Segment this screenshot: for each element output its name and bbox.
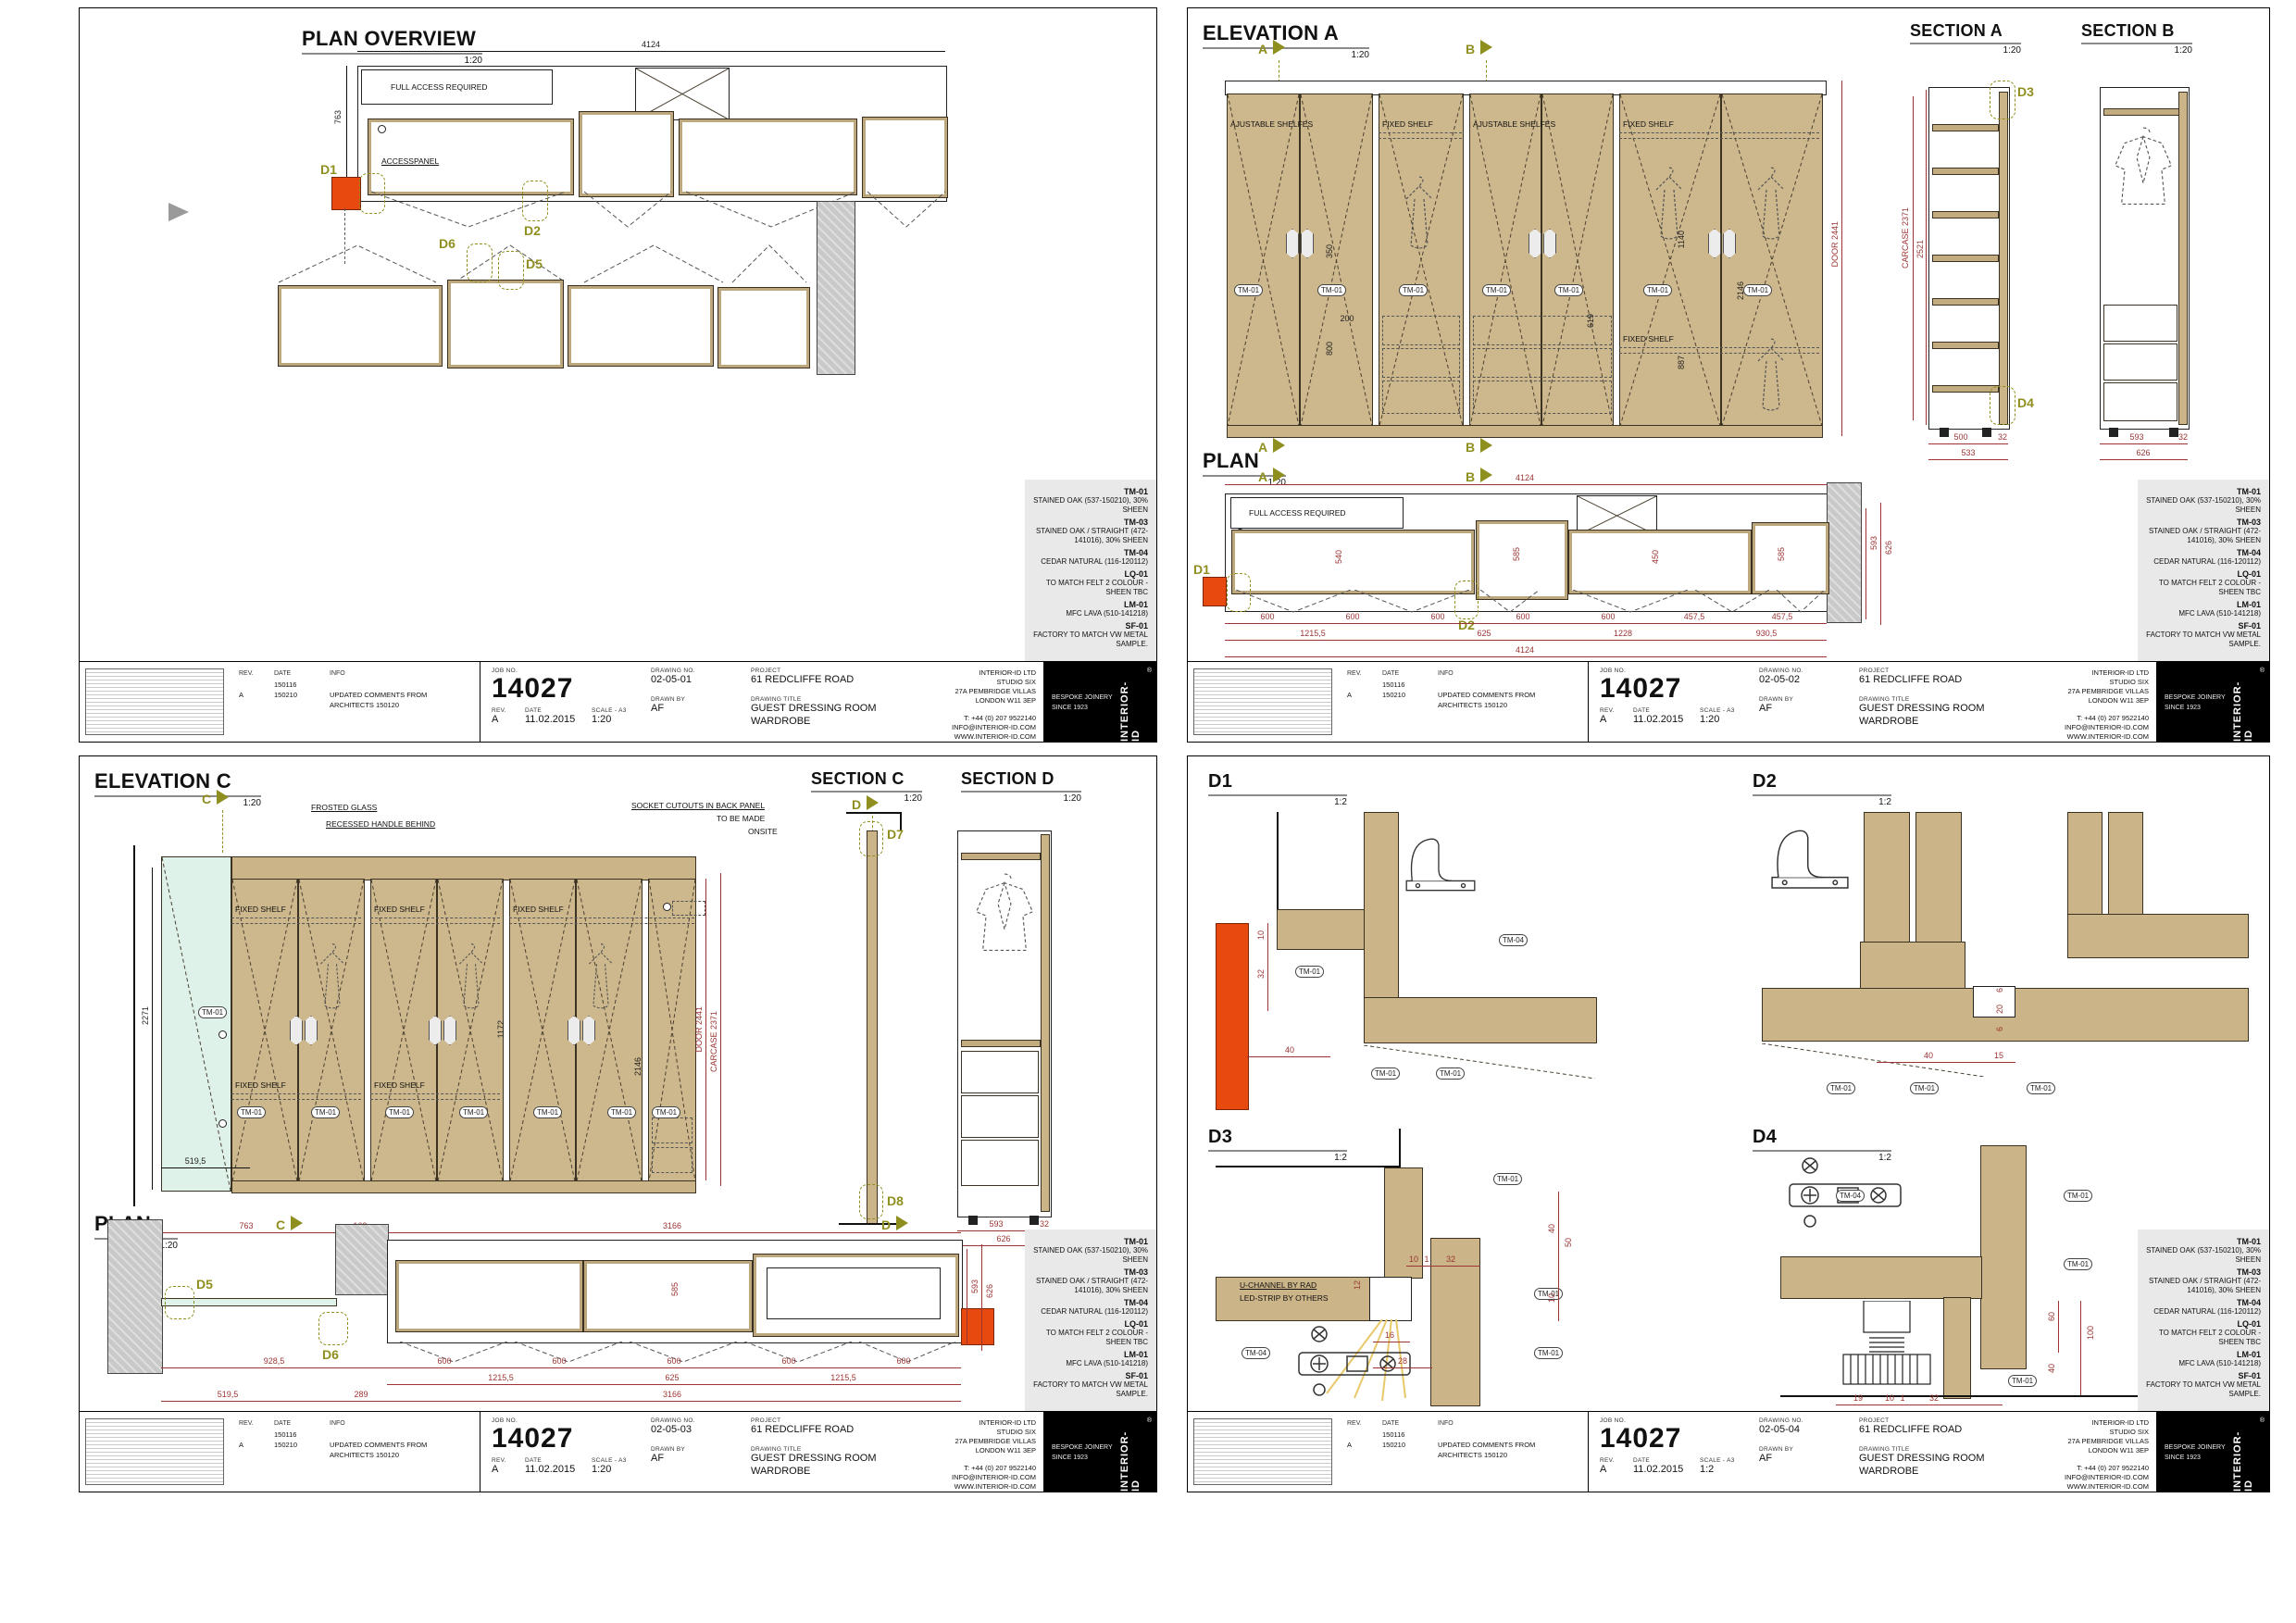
company-line: LONDON W11 3EP [895,696,1036,705]
detail-bubble-d5 [498,251,524,290]
label: REV. [492,1457,518,1464]
dim: 585 [1512,547,1521,561]
project-name: 61 REDCLIFFE ROAD [751,1424,877,1437]
phone: T: +44 (0) 207 9522140 [895,714,1036,723]
dim-line [387,1384,961,1385]
label: SCALE - A3 [592,707,640,714]
label-adjustable-shelves: AJUSTABLE SHELFES [1473,119,1555,129]
dim: 4124 [1516,645,1534,655]
material-tag: TM-01 [385,1106,414,1118]
dim-line [1225,656,1827,657]
drawing-scale: 1:2 [1208,797,1347,807]
scale-value: 1:20 [592,1464,640,1477]
sheet-elevation-a: ELEVATION A1:20 A B AJUSTABLE SHELFES FI… [1187,7,2270,743]
dim: 619 [1586,314,1595,328]
dim: 1228 [1614,629,1632,638]
wall-line [133,845,135,1206]
logo-wordmark: INTERIOR-ID [2232,669,2254,742]
panel-section [2067,914,2249,958]
dim-line [357,51,945,52]
rev [1347,680,1379,690]
break-arrow [168,203,189,221]
material-tag: TM-01 [1482,284,1511,296]
dim-line [981,1244,982,1351]
label: DATE [1633,707,1692,714]
dim-line [387,1401,961,1402]
label: DRAWING TITLE [751,1446,877,1453]
drawing-number: 02-05-04 [1759,1424,1839,1437]
frosted-glass-door [161,856,231,1192]
dim-carcase: CARCASE 2371 [1901,207,1910,268]
shelf-dashed [509,918,694,924]
shelf [1932,211,1999,218]
rev-date: 150116 [1382,1429,1434,1440]
company-block: INTERIOR-ID LTDSTUDIO SIX27A PEMBRIDGE V… [888,662,1043,742]
note-recessed-handle: RECESSED HANDLE BEHIND [326,819,435,829]
drawer [2103,382,2177,421]
label: DRAWN BY [651,1446,730,1453]
material-desc: CEDAR NATURAL (116-120112) [2146,557,2261,567]
date-value: 11.02.2015 [1633,714,1692,727]
dim-door-height: DOOR 2441 [1830,221,1840,268]
disclaimer-text [1193,668,1332,735]
dim-carcase: CARCASE 2371 [709,1011,718,1072]
detail-marker-d1: D1 [320,162,337,177]
wall-section [335,1224,389,1295]
dim: 40 [2047,1364,2056,1373]
dim-line [1558,1192,1559,1321]
rev-info: UPDATED COMMENTS FROM ARCHITECTS 150120 [330,1440,470,1461]
hanger-sketch [1401,175,1438,254]
dim: 40 [1285,1045,1294,1055]
wall-line [1277,812,1279,914]
dim: 600 [552,1356,566,1366]
materials-legend: TM-01STAINED OAK (537-150210), 30% SHEEN… [1025,1230,1156,1411]
registered-icon: ® [2260,668,2265,674]
detail-bubble-d4 [1990,386,2015,425]
registered-icon: ® [1147,1417,1152,1424]
drawing-header: PLAN OVERVIEW 1:20 [302,27,482,66]
email: INFO@INTERIOR-ID.COM [895,723,1036,732]
dim-line [2174,443,2188,444]
material-desc: FACTORY TO MATCH VW METAL SAMPLE. [2146,1380,2261,1399]
cabinet-plan [680,119,856,194]
materials-legend: TM-01STAINED OAK (537-150210), 30% SHEEN… [1025,480,1156,661]
label-fixed-shelf: FIXED SHELF [374,1080,425,1090]
material-code: TM-03 [2146,1267,2261,1277]
company-line: 27A PEMBRIDGE VILLAS [895,1437,1036,1446]
drawer [2103,343,2177,381]
dim: 2146 [633,1057,643,1076]
drawing-header: SECTION D1:20 [961,769,1081,804]
dim-line [1836,1405,2003,1405]
material-desc: MFC LAVA (510-141218) [2146,609,2261,618]
dim-line [161,1401,387,1402]
drawing-title: D2 [1753,771,1891,793]
dim: 763 [333,110,343,124]
material-code: TM-04 [2146,548,2261,557]
handle-dot [218,1119,227,1128]
section-door-edge [1041,834,1050,1212]
dim: 1215,5 [1300,629,1326,638]
panel-section [1364,997,1597,1043]
material-code: TM-01 [2146,1237,2261,1246]
section-flag-b: B [1466,42,1475,56]
dim: 930,5 [1756,629,1778,638]
shelf-dashed [370,918,500,924]
detail-marker-d7: D7 [887,827,904,842]
rev [239,1429,270,1440]
section-door-edge [1999,92,2008,425]
label: DRAWN BY [651,696,730,703]
title-block: REV.DATEINFO 150116 A150210UPDATED COMME… [80,1411,1156,1492]
material-tag: TM-01 [607,1106,636,1118]
drawing-title-2: WARDROBE [751,716,877,729]
material-tag: TM-01 [1554,284,1583,296]
dim: 533 [1961,448,1975,457]
drawn-by: AF [651,1453,730,1466]
website: WWW.INTERIOR-ID.COM [895,732,1036,742]
wardrobe-door [1227,94,1300,427]
phone: T: +44 (0) 207 9522140 [2008,714,2149,723]
dim-line [1978,1062,2015,1063]
material-tag: TM-01 [2027,1082,2055,1094]
panel-section [1915,812,1962,943]
detail-marker-d4: D4 [2017,395,2034,410]
material-desc: TO MATCH FELT 2 COLOUR - SHEEN TBC [2146,579,2261,597]
project-name: 61 REDCLIFFE ROAD [1859,1424,1990,1437]
dim: 32 [1040,1219,1049,1229]
logo-tagline-2: SINCE 1923 [2165,705,2201,711]
section-flag-b: B [1466,469,1475,484]
hinge-section [1764,821,1856,893]
material-desc: STAINED OAK / STRAIGHT (472-141016), 30%… [1033,527,1148,545]
info-col: INFO [1438,1419,1578,1429]
dim: 15 [1994,1051,2003,1060]
wall-line [1399,1129,1401,1166]
revision-table: REV.DATEINFO 150116 A150210UPDATED COMME… [230,1412,480,1492]
adjustable-foot [2169,428,2178,437]
disclaimer-text [85,1418,224,1485]
shelf-dashed [1379,132,1462,139]
dim: 40 [1547,1224,1556,1233]
dim: 350 [1325,244,1334,258]
material-tag: TM-01 [1371,1067,1400,1080]
drawing-header: D31:2 [1208,1127,1347,1163]
disclaimer-text [1193,1418,1332,1485]
detail-marker-d6: D6 [322,1347,339,1362]
dim: 600 [1601,612,1615,621]
material-desc: STAINED OAK / STRAIGHT (472-141016), 30%… [2146,1277,2261,1295]
title-fields: JOB NO.14027 REV.DATESCALE - A3 A11.02.2… [1589,662,2001,742]
drawing-title: SECTION B [2081,21,2192,41]
material-code: TM-01 [1033,1237,1148,1246]
dim: 200 [1340,314,1354,323]
material-desc: CEDAR NATURAL (116-120112) [2146,1307,2261,1317]
title-fields: JOB NO.14027 REV.DATESCALE - A3 A11.02.2… [480,1412,888,1492]
dim: 593 [2129,432,2143,442]
dim: 600 [896,1356,910,1366]
material-desc: STAINED OAK (537-150210), 30% SHEEN [2146,496,2261,515]
dim: 10 [1256,930,1266,940]
wall-finish-orange [1203,577,1227,606]
label: DRAWING NO. [1759,1417,1839,1424]
plinth-section [1943,1297,1971,1399]
material-tag: TM-01 [1910,1082,1939,1094]
dim: 626 [985,1284,994,1298]
dim-line [161,1232,335,1233]
label: REV. [492,707,518,714]
website: WWW.INTERIOR-ID.COM [2008,1482,2149,1492]
phone: T: +44 (0) 207 9522140 [895,1464,1036,1473]
material-code: TM-03 [2146,518,2261,527]
drawing-title: SECTION A [1910,21,2021,41]
drawing-header: SECTION A1:20 [1910,21,2021,56]
company-logo: BESPOKE JOINERYSINCE 1923 INTERIOR-ID ® [2156,1412,2269,1492]
material-code: LQ-01 [1033,1319,1148,1329]
label: DRAWN BY [1759,1446,1839,1453]
rev-date: 150210 [274,1440,326,1461]
dim: 10 [1885,1393,1894,1403]
company-line: INTERIOR-ID LTD [2008,1418,2149,1428]
detail-marker-d6: D6 [439,236,455,251]
cabinet-plan [448,281,563,368]
door-handle [1286,229,1299,258]
label: DATE [525,1457,584,1464]
dim-line [1267,923,1268,1011]
material-code: TM-01 [2146,487,2261,496]
company-line: LONDON W11 3EP [2008,696,2149,705]
dim: 600 [1345,612,1359,621]
dim: 32 [1998,432,2007,442]
detail-bubble-d8 [859,1184,883,1219]
dim-line [1993,443,2008,444]
flag-icon [896,1216,908,1230]
door-section [1980,1145,2027,1369]
top-panel [231,856,696,880]
door-swing-lines [279,242,811,284]
drawing-title-1: GUEST DRESSING ROOM [1859,1453,1990,1466]
label-fixed-shelf: FIXED SHELF [374,905,425,914]
rev-info: UPDATED COMMENTS FROM ARCHITECTS 150120 [1438,690,1578,711]
rev: A [239,690,270,711]
label-adjustable-shelves: AJUSTABLE SHELFES [1230,119,1313,129]
material-desc: FACTORY TO MATCH VW METAL SAMPLE. [2146,630,2261,649]
drawer-dashed [652,1117,693,1143]
door-handle [1301,229,1314,258]
company-block: INTERIOR-ID LTDSTUDIO SIX27A PEMBRIDGE V… [888,1412,1043,1492]
dim: 32 [1256,969,1266,979]
rev-value: A [1600,714,1626,727]
company-line: LONDON W11 3EP [895,1446,1036,1455]
detail-bubble-d7 [859,821,883,856]
dim-line [1225,640,1827,641]
label-fixed-shelf: FIXED SHELF [1623,119,1674,129]
dim: 6 [1995,1027,2004,1031]
material-tag: TM-01 [1827,1082,1855,1094]
adjustable-foot [968,1216,978,1225]
dim: 16 [1385,1330,1394,1340]
adjustable-foot [1940,428,1949,437]
dim: 457,5 [1772,612,1793,621]
revision-table: REV.DATEINFO 150116 A150210UPDATED COMME… [1338,1412,1589,1492]
cabinet-plan [1477,521,1567,599]
material-desc: CEDAR NATURAL (116-120112) [1033,1307,1148,1317]
material-code: TM-04 [1033,548,1148,557]
flag-icon [217,790,229,805]
dim: 593 [970,1280,980,1293]
hanger-sketch [1753,166,1790,244]
section-flag-c: C [276,1217,285,1232]
drawing-title-1: GUEST DRESSING ROOM [751,1453,877,1466]
company-line: INTERIOR-ID LTD [895,1418,1036,1428]
floor-line [839,1223,904,1225]
adjustable-foot [1982,428,1991,437]
section-flag-c: C [202,792,211,806]
adjustable-foot [2109,428,2118,437]
dim-line [387,1232,961,1233]
material-desc: TO MATCH FELT 2 COLOUR - SHEEN TBC [1033,1329,1148,1347]
drawn-by: AF [1759,1453,1839,1466]
title-fields: JOB NO.14027 REV.DATESCALE - A3 A11.02.2… [480,662,888,742]
drawer-dashed [1473,348,1612,378]
door-handle [582,1016,595,1045]
rev-info: UPDATED COMMENTS FROM ARCHITECTS 150120 [1438,1440,1578,1461]
door-handle [290,1016,303,1045]
rev [1347,1429,1379,1440]
dim: 593 [1869,536,1878,550]
dim: 2271 [141,1006,150,1025]
material-tag: TM-01 [1534,1347,1563,1359]
rev-info [330,1429,470,1440]
detail-marker-d5: D5 [526,256,543,271]
dim: 1 [1900,1393,1904,1403]
drawing-scale: 1:20 [2081,45,2192,56]
drawing-title-2: WARDROBE [1859,716,1990,729]
material-code: TM-04 [2146,1298,2261,1307]
section-cut-line [222,810,223,853]
section-flag-b: B [1466,440,1475,455]
date-col: DATE [274,1419,326,1429]
panel-section [1780,1256,1982,1299]
dim-line [1225,484,1827,485]
drawing-header: D11:2 [1208,771,1347,807]
hanger-sketch [1753,337,1790,416]
dim: 600 [667,1356,680,1366]
label: DRAWING NO. [1759,668,1839,674]
wall-section [1827,482,1862,623]
section-cut-line [1486,60,1487,82]
dim: 60 [2047,1312,2056,1321]
material-tag: TM-01 [533,1106,562,1118]
dim-line [1865,508,1866,619]
dim: 600 [1260,612,1274,621]
dim-line [957,1230,1035,1231]
plinth [231,1180,696,1193]
material-tag: TM-01 [1399,284,1428,296]
rev [239,680,270,690]
drawing-header: SECTION C1:20 [811,769,922,804]
detail-bubble-d6 [318,1312,348,1345]
dim: 20 [1995,1005,2004,1014]
plinth [1227,425,1823,438]
shelf [1932,342,1999,349]
note-full-access: FULL ACCESS REQUIRED [391,82,488,92]
dim: 100 [2086,1326,2095,1340]
material-code: SF-01 [1033,1371,1148,1380]
label-fixed-shelf: FIXED SHELF [1382,119,1433,129]
material-tag: TM-01 [2064,1190,2092,1202]
drawer-dashed [1382,348,1460,378]
scale-value: 1:2 [1700,1464,1748,1477]
drawing-title-2: WARDROBE [1859,1466,1990,1479]
date-col: DATE [274,669,326,680]
door-handle [1723,229,1736,258]
logo-wordmark: INTERIOR-ID [1119,669,1142,742]
label: PROJECT [751,668,877,674]
material-code: TM-01 [1033,487,1148,496]
wall-section [817,201,855,375]
dim-line [1247,1056,1330,1057]
dim: 4124 [1516,473,1534,482]
dim: 1 [1424,1255,1429,1264]
drawer-dashed [1382,381,1460,414]
drawer-dashed [652,1147,693,1173]
panel-section [1277,909,1366,950]
socket-cutout-dashed [672,901,705,916]
label: DATE [1633,1457,1692,1464]
rev-value: A [492,1464,518,1477]
cabinet-plan [584,1261,752,1331]
material-code: SF-01 [1033,621,1148,630]
flag-icon [1480,468,1492,482]
sheet-plan-overview: PLAN OVERVIEW 1:20 4124 763 FULL ACCESS … [79,7,1157,743]
drawing-title: D3 [1208,1127,1347,1148]
logo-wordmark: INTERIOR-ID [1119,1419,1142,1492]
scale-value: 1:20 [592,714,640,727]
material-code: TM-04 [1033,1298,1148,1307]
material-code: LM-01 [2146,600,2261,609]
company-line: STUDIO SIX [2008,678,2149,687]
company-line: 27A PEMBRIDGE VILLAS [895,687,1036,696]
title-block: REV.DATEINFO 150116 A150210UPDATED COMME… [1188,1411,2269,1492]
dim-line [1928,459,2008,460]
date-value: 11.02.2015 [1633,1464,1692,1477]
dim: 1215,5 [488,1373,514,1382]
materials-legend: TM-01STAINED OAK (537-150210), 30% SHEEN… [2138,1230,2269,1411]
shelf [2103,108,2179,116]
label: PROJECT [1859,668,1990,674]
dim: 28 [1398,1356,1407,1366]
adjustable-foot [1029,1216,1039,1225]
label: DRAWING TITLE [1859,696,1990,703]
logo-tagline-1: BESPOKE JOINERY [1052,1444,1113,1451]
dim-line [2100,459,2188,460]
company-block: INTERIOR-ID LTDSTUDIO SIX27A PEMBRIDGE V… [2001,662,2156,742]
material-desc: MFC LAVA (510-141218) [1033,1359,1148,1368]
logo-tagline-1: BESPOKE JOINERY [1052,694,1113,701]
wall-section [107,1219,163,1374]
dim-line [152,868,153,1190]
email: INFO@INTERIOR-ID.COM [2008,723,2149,732]
dim: 19 [1853,1393,1863,1403]
email: INFO@INTERIOR-ID.COM [2008,1473,2149,1482]
label: DATE [525,707,584,714]
cabinet-plan [396,1261,582,1331]
cabinet-plan [580,112,673,196]
logo-tagline-2: SINCE 1923 [1052,1454,1088,1461]
dim: 2146 [1736,281,1745,300]
